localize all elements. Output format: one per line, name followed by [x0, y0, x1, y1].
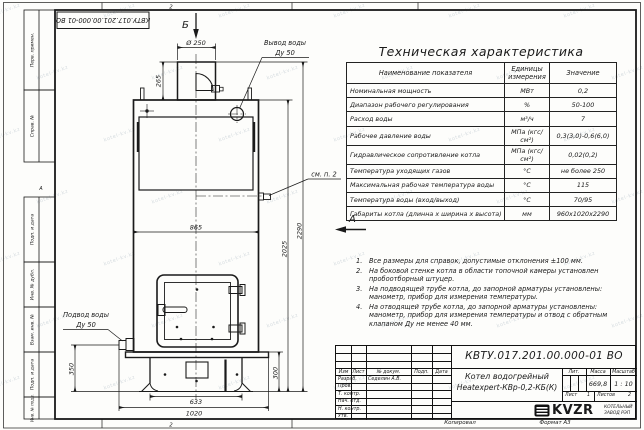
- svg-text:Ду 50: Ду 50: [274, 49, 295, 57]
- svg-text:Инв. № дубл.: Инв. № дубл.: [30, 269, 36, 300]
- table-row: Температура воды (вход/выход)°С70/95: [347, 192, 617, 206]
- table-row: Диапазон рабочего регулирования%50-100: [347, 98, 617, 112]
- footer-format: Формат А3: [515, 420, 595, 426]
- boiler-body: [134, 62, 271, 352]
- mass-label: Масса: [586, 370, 610, 375]
- furnace-door: [157, 275, 245, 347]
- col-docnum: № докум.: [366, 370, 411, 375]
- svg-text:Ду 50: Ду 50: [75, 321, 96, 329]
- footer-copy: Копировал: [415, 420, 505, 426]
- svg-text:Справ. №: Справ. №: [30, 115, 36, 138]
- notes-list: 1.Все размеры для справок, допустимые от…: [356, 257, 622, 330]
- view-b-marker: Б: [182, 13, 199, 39]
- dimension-labels: Ø 250 265 865 350 300 633 1020 2025 2290: [68, 39, 304, 418]
- row-nachotd: Нач. отд.: [338, 399, 361, 404]
- spec-table-title: Техническая характеристика: [346, 44, 616, 59]
- svg-text:Ø 250: Ø 250: [185, 39, 206, 47]
- outlet-label: Вывод воды Ду 50: [240, 39, 310, 109]
- svg-text:350: 350: [68, 363, 76, 375]
- left-margin-boxes: [24, 10, 55, 419]
- flue-damper-icon: [196, 74, 213, 91]
- company-line1: КОТЕЛЬНЫЙ: [604, 405, 633, 410]
- inlet-label: Подвод воды Ду 50: [63, 311, 123, 341]
- product-name-2: Heatexpert-КВр-0,2-КБ(К): [452, 383, 562, 392]
- svg-text:Подп. и дата: Подп. и дата: [30, 359, 36, 390]
- note-item: 1.Все размеры для справок, допустимые от…: [356, 257, 622, 266]
- zone-number-top: 2: [169, 5, 173, 11]
- svg-text:633: 633: [190, 398, 202, 406]
- table-row: Гидравлическое сопротивление котлаМПа (к…: [347, 145, 617, 164]
- svg-text:2290: 2290: [296, 223, 304, 240]
- title-block: Изм Лист № докум. Подп. Дата Разраб. Сед…: [335, 345, 636, 419]
- svg-text:1020: 1020: [186, 410, 203, 418]
- row-nkontr: Н. контр.: [338, 407, 361, 412]
- svg-text:Инв. № подл.: Инв. № подл.: [30, 394, 35, 422]
- kvzr-logo-icon: [534, 404, 550, 417]
- svg-text:265: 265: [155, 75, 163, 87]
- note-item: 4.На отводящей трубе котла, до запорной …: [356, 303, 622, 329]
- zone-number-bottom: 2: [169, 423, 173, 429]
- top-inverted-stamp: КВТУ.017.201.00.000-01 ВО: [56, 12, 150, 29]
- row-utv: Утв.: [338, 414, 348, 419]
- spec-table: Наименование показателя Единицы измерени…: [346, 62, 617, 221]
- scale-value: 1 : 10: [610, 380, 637, 388]
- svg-text:Подп. и дата: Подп. и дата: [30, 214, 36, 245]
- razrab-name: Седелин А.В.: [368, 377, 401, 382]
- col-header-name: Наименование показателя: [347, 63, 505, 84]
- svg-text:Взам. инв. №: Взам. инв. №: [30, 314, 36, 345]
- note-item: 2.На боковой стенке котла в области топо…: [356, 267, 622, 284]
- col-podp: Подп.: [411, 370, 432, 375]
- kvzr-logo: KVZR: [534, 403, 594, 418]
- svg-text:2025: 2025: [281, 241, 289, 258]
- lifting-lug-right: [248, 88, 252, 100]
- table-row: Габариты котла (длинна х ширина х высота…: [347, 207, 617, 221]
- engineering-drawing-sheet: kotel-kv.kzkotel-kv.kzkotel-kv.kzkotel-k…: [0, 0, 644, 430]
- svg-text:Вывод воды: Вывод воды: [264, 39, 306, 47]
- company-line2: ЗАВОД РЭП: [604, 411, 630, 416]
- sheet-value: 1: [587, 393, 590, 398]
- table-row: Максимальная рабочая температура воды°С1…: [347, 178, 617, 192]
- lit-label: Лит.: [562, 370, 586, 375]
- col-header-units: Единицы измерения: [505, 63, 550, 84]
- table-row: Расход водым³/ч7: [347, 112, 617, 126]
- svg-text:300: 300: [272, 367, 280, 379]
- sheets-value: 2: [628, 393, 631, 398]
- spec-header-row: Наименование показателя Единицы измерени…: [347, 63, 617, 84]
- svg-text:865: 865: [190, 224, 202, 232]
- svg-text:Перв. примен.: Перв. примен.: [30, 33, 36, 68]
- centerlines: [196, 54, 264, 400]
- logo-text: KVZR: [552, 403, 594, 418]
- doc-number: КВТУ.017.201.00.000-01 ВО: [451, 350, 637, 362]
- col-list: Лист: [351, 370, 366, 375]
- col-header-value: Значение: [550, 63, 617, 84]
- water-inlet-port: [119, 341, 126, 350]
- row-razrab: Разраб.: [338, 377, 357, 382]
- left-margin-labels: Перв. примен. Справ. № Подп. и дата Инв.…: [30, 33, 36, 422]
- technical-characteristics: Техническая характеристика Наименование …: [346, 44, 616, 221]
- svg-text:Б: Б: [182, 20, 189, 31]
- lifting-lug-left: [141, 88, 145, 100]
- table-row: Номинальная мощностьМВт0,2: [347, 84, 617, 98]
- sheet-label: Лист: [565, 393, 577, 398]
- note-item: 3.На подводящей трубе котла, до запорной…: [356, 285, 622, 302]
- see-note-label: см. п. 2: [269, 171, 341, 196]
- sheets-label: Листов: [597, 393, 615, 398]
- col-izm: Изм: [336, 370, 351, 375]
- scale-label: Масштаб: [610, 370, 637, 375]
- door-handle: [158, 305, 165, 316]
- top-stamp-doc-number: КВТУ.017.201.00.000-01 ВО: [56, 16, 150, 24]
- zone-letter-left: А: [38, 186, 43, 192]
- ash-opening: [186, 362, 208, 378]
- table-row: Рабочее давление водыМПа (кгс/см²)0,3(3,…: [347, 126, 617, 145]
- svg-text:Подвод воды: Подвод воды: [63, 311, 109, 319]
- svg-text:см. п. 2: см. п. 2: [311, 171, 337, 179]
- row-tkontr: Т. контр.: [338, 392, 360, 397]
- table-row: Температура уходящих газов°Сне более 250: [347, 164, 617, 178]
- col-data: Дата: [432, 370, 451, 375]
- row-prov: Пров.: [338, 384, 352, 389]
- mass-value: 669,8: [586, 380, 610, 388]
- product-name-1: Котел водогрейный: [453, 372, 561, 381]
